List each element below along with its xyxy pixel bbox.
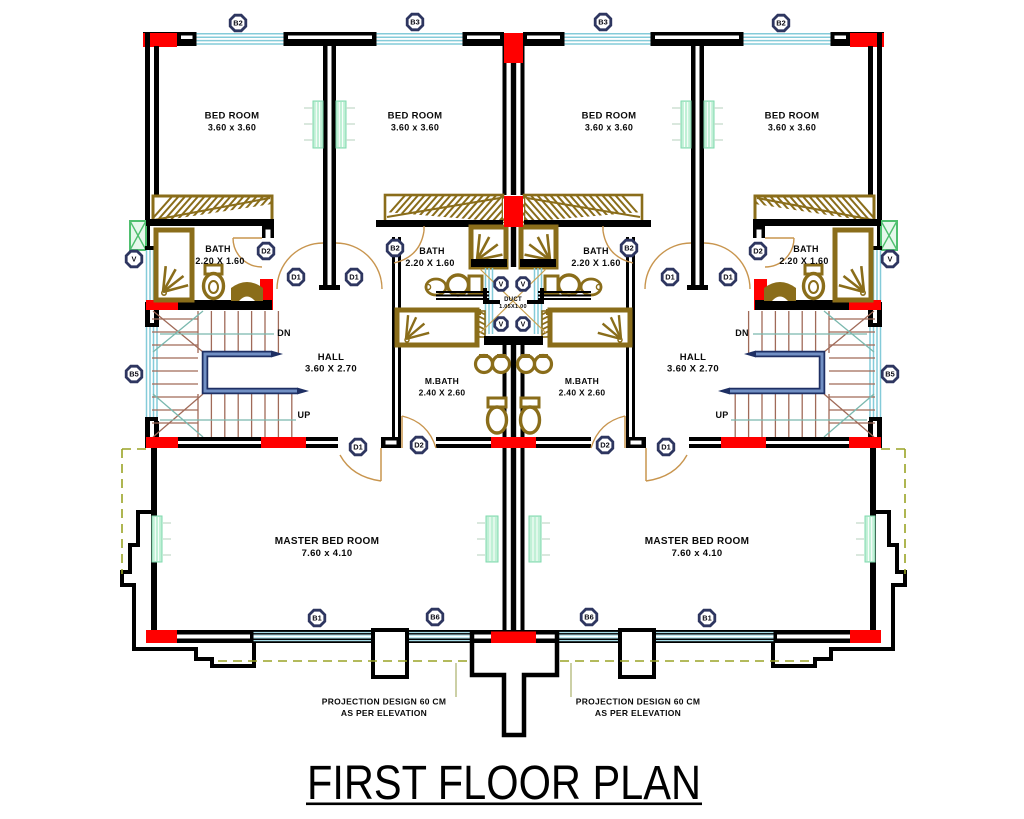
svg-text:B6: B6 bbox=[584, 613, 593, 622]
svg-text:D2: D2 bbox=[600, 441, 609, 450]
svg-text:D2: D2 bbox=[261, 247, 270, 256]
svg-text:BED ROOM: BED ROOM bbox=[388, 111, 443, 122]
svg-text:2.40 X 2.60: 2.40 X 2.60 bbox=[419, 388, 466, 398]
svg-text:B5: B5 bbox=[129, 370, 138, 379]
svg-text:AS PER ELEVATION: AS PER ELEVATION bbox=[341, 708, 427, 718]
svg-text:B6: B6 bbox=[430, 613, 439, 622]
svg-text:D1: D1 bbox=[665, 273, 674, 282]
svg-text:MASTER BED ROOM: MASTER BED ROOM bbox=[275, 536, 380, 547]
svg-text:V: V bbox=[521, 322, 526, 329]
svg-text:BED ROOM: BED ROOM bbox=[582, 111, 637, 122]
svg-text:M.BATH: M.BATH bbox=[565, 376, 599, 386]
svg-text:HALL: HALL bbox=[680, 352, 707, 363]
svg-text:DUCT: DUCT bbox=[504, 297, 522, 303]
svg-text:BED ROOM: BED ROOM bbox=[765, 111, 820, 122]
svg-text:UP: UP bbox=[715, 410, 728, 420]
svg-text:2.20 X 1.60: 2.20 X 1.60 bbox=[195, 256, 244, 266]
svg-text:3.60 x 3.60: 3.60 x 3.60 bbox=[585, 123, 633, 133]
svg-text:PROJECTION DESIGN 60 CM: PROJECTION DESIGN 60 CM bbox=[322, 697, 447, 707]
svg-text:BED ROOM: BED ROOM bbox=[205, 111, 260, 122]
svg-text:B2: B2 bbox=[233, 19, 242, 28]
svg-text:D1: D1 bbox=[661, 443, 670, 452]
svg-text:7.60 x 4.10: 7.60 x 4.10 bbox=[672, 548, 723, 559]
svg-text:B5: B5 bbox=[885, 370, 894, 379]
svg-text:B1: B1 bbox=[702, 614, 711, 623]
svg-text:BATH: BATH bbox=[583, 246, 609, 256]
svg-text:V: V bbox=[888, 255, 893, 264]
svg-text:2.20 X 1.60: 2.20 X 1.60 bbox=[405, 258, 454, 268]
svg-text:B3: B3 bbox=[410, 18, 419, 27]
svg-text:1.05X1.00: 1.05X1.00 bbox=[499, 304, 527, 310]
svg-text:B2: B2 bbox=[390, 244, 399, 253]
svg-text:2.20 X 1.60: 2.20 X 1.60 bbox=[779, 256, 828, 266]
svg-text:3.60 X 2.70: 3.60 X 2.70 bbox=[667, 364, 719, 375]
svg-text:DN: DN bbox=[277, 328, 291, 338]
svg-text:MASTER BED ROOM: MASTER BED ROOM bbox=[645, 536, 750, 547]
svg-text:7.60 x 4.10: 7.60 x 4.10 bbox=[302, 548, 353, 559]
svg-text:B3: B3 bbox=[598, 18, 607, 27]
svg-text:BATH: BATH bbox=[793, 244, 819, 254]
svg-text:D1: D1 bbox=[723, 273, 732, 282]
svg-text:B1: B1 bbox=[312, 614, 321, 623]
svg-text:BATH: BATH bbox=[419, 246, 445, 256]
svg-text:3.60 x 3.60: 3.60 x 3.60 bbox=[768, 123, 816, 133]
svg-text:AS PER ELEVATION: AS PER ELEVATION bbox=[595, 708, 681, 718]
svg-text:DN: DN bbox=[735, 328, 749, 338]
svg-text:2.20 X 1.60: 2.20 X 1.60 bbox=[571, 258, 620, 268]
svg-text:3.60 X 2.70: 3.60 X 2.70 bbox=[305, 364, 357, 375]
svg-text:UP: UP bbox=[297, 410, 310, 420]
svg-text:D2: D2 bbox=[414, 441, 423, 450]
svg-text:V: V bbox=[499, 282, 504, 289]
svg-text:B2: B2 bbox=[624, 244, 633, 253]
svg-text:HALL: HALL bbox=[318, 352, 345, 363]
svg-text:PROJECTION DESIGN 60 CM: PROJECTION DESIGN 60 CM bbox=[576, 697, 701, 707]
svg-text:2.40 X 2.60: 2.40 X 2.60 bbox=[559, 388, 606, 398]
svg-text:FIRST FLOOR PLAN: FIRST FLOOR PLAN bbox=[307, 757, 701, 810]
svg-text:3.60 x 3.60: 3.60 x 3.60 bbox=[391, 123, 439, 133]
svg-text:BATH: BATH bbox=[205, 244, 231, 254]
svg-text:D2: D2 bbox=[753, 247, 762, 256]
svg-text:D1: D1 bbox=[291, 273, 300, 282]
svg-text:M.BATH: M.BATH bbox=[425, 376, 459, 386]
svg-text:3.60 x 3.60: 3.60 x 3.60 bbox=[208, 123, 256, 133]
svg-text:D1: D1 bbox=[349, 273, 358, 282]
svg-text:V: V bbox=[521, 282, 526, 289]
svg-text:V: V bbox=[499, 322, 504, 329]
svg-text:V: V bbox=[132, 255, 137, 264]
svg-text:D1: D1 bbox=[353, 443, 362, 452]
svg-text:B2: B2 bbox=[776, 19, 785, 28]
